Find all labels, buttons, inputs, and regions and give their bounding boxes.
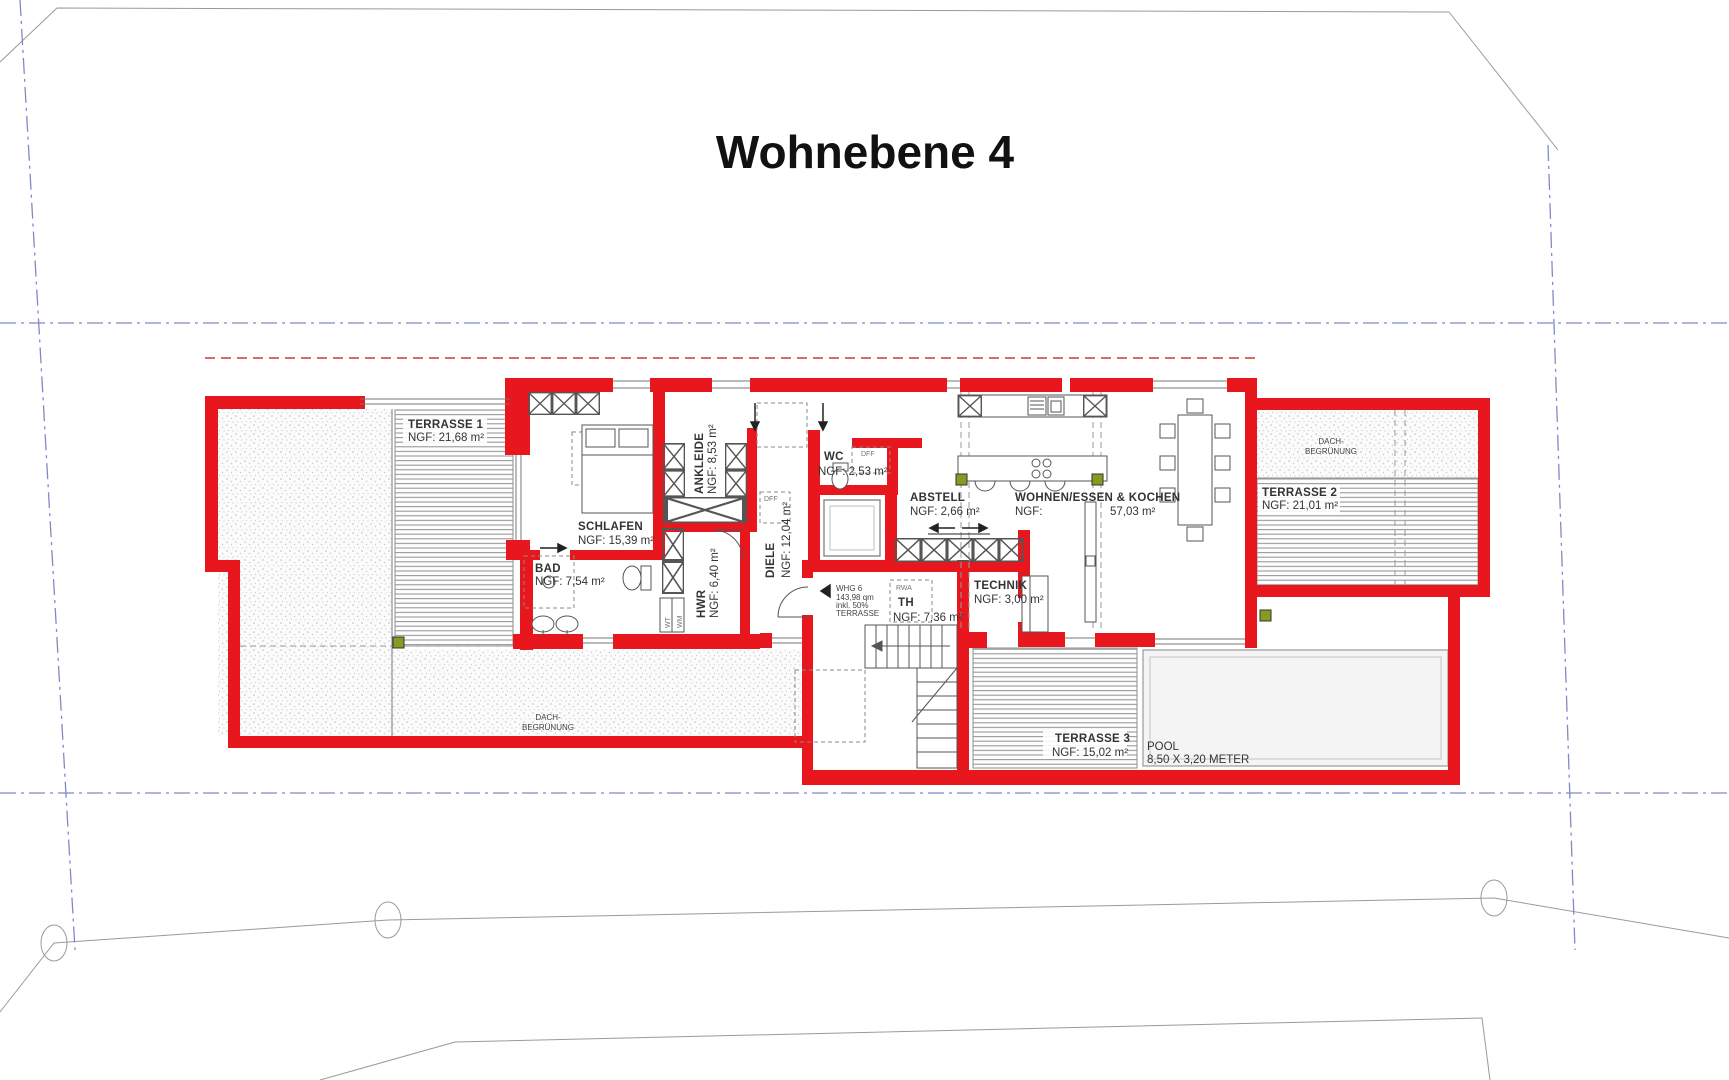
room-label-diele: DIELE xyxy=(765,543,777,578)
sink xyxy=(532,616,554,632)
bed xyxy=(582,425,653,513)
skylight-dashed-box xyxy=(757,403,807,447)
bar-stool xyxy=(1010,481,1030,491)
room-area-schlafen: NGF: 15,39 m² xyxy=(578,535,654,547)
room-label-schlafen: SCHLAFEN xyxy=(578,521,643,533)
room-area-terrasse3: NGF: 15,02 m² xyxy=(1052,747,1128,759)
room-area-ankleide: NGF: 8,53 m² xyxy=(707,424,719,494)
room-area-bad: NGF: 7,54 m² xyxy=(535,576,605,588)
dach-line1: DACH- xyxy=(1318,437,1344,446)
whg-annotation: WHG 6 143,98 qm inkl. 50% TERRASSE xyxy=(836,584,879,618)
dff-label: DFF xyxy=(764,496,778,503)
room-label-terrasse2: TERRASSE 2 xyxy=(1262,487,1337,499)
room-label-bad: BAD xyxy=(535,563,561,575)
room-area-abstell: NGF: 2,66 m² xyxy=(910,506,980,518)
sink xyxy=(556,616,578,632)
dach-line2: BEGRÜNUNG xyxy=(1305,447,1357,456)
bar-stool xyxy=(975,481,995,491)
dach-line1: DACH- xyxy=(535,713,561,722)
floor-plan-canvas: Wohnebene 4 TERRASSE 1 NGF: 21,68 m² SCH… xyxy=(0,0,1729,1080)
pool xyxy=(1143,650,1448,766)
wm-label: WM xyxy=(677,615,684,628)
room-area-technik: NGF: 3,00 m² xyxy=(974,594,1044,606)
stair-direction-arrow xyxy=(872,641,882,651)
elevator-car xyxy=(824,500,880,556)
wt-label: WT xyxy=(665,616,672,628)
room-area-hwr: NGF: 6,40 m² xyxy=(709,548,721,618)
room-label-technik: TECHNIK xyxy=(974,580,1028,592)
room-label-pool: POOL xyxy=(1147,741,1180,753)
toilet xyxy=(623,566,651,590)
room-area-terrasse2: NGF: 21,01 m² xyxy=(1262,500,1338,512)
kitchen xyxy=(958,395,1107,491)
room-label-terrasse1: TERRASSE 1 xyxy=(408,419,484,431)
room-area-terrasse1: NGF: 21,68 m² xyxy=(408,432,484,444)
staircase xyxy=(865,625,957,768)
bar-stool xyxy=(1045,481,1065,491)
room-area-th: NGF: 7,36 m² xyxy=(893,612,963,624)
room-label-ankleide: ANKLEIDE xyxy=(694,433,706,494)
door-arc xyxy=(778,587,808,617)
dach-line2: BEGRÜNUNG xyxy=(522,723,574,732)
room-area-label-wohnen: NGF: xyxy=(1015,506,1042,518)
room-label-hwr: HWR xyxy=(696,589,708,618)
whg-line4: TERRASSE xyxy=(836,609,879,618)
room-area-wc: NGF: 2,53 m² xyxy=(818,466,888,478)
terrasse-1-deck xyxy=(395,410,513,646)
room-area-value-wohnen: 57,03 m² xyxy=(1110,506,1156,518)
entrance-marker-triangle xyxy=(821,585,830,597)
room-label-th: TH xyxy=(898,597,914,609)
room-label-wc: WC xyxy=(824,451,844,463)
whg-line1: WHG 6 xyxy=(836,584,863,593)
room-label-abstell: ABSTELL xyxy=(910,492,965,504)
page-title: Wohnebene 4 xyxy=(716,126,1015,178)
rwa-label: RWA xyxy=(896,585,912,592)
room-label-terrasse3: TERRASSE 3 xyxy=(1055,733,1130,745)
pool-dimensions: 8,50 X 3,20 METER xyxy=(1147,754,1249,766)
tv-lowboard xyxy=(1085,502,1096,622)
dining-set xyxy=(1160,399,1230,541)
room-area-diele: NGF: 12,04 m² xyxy=(781,502,793,578)
room-label-wohnen: WOHNEN/ESSEN & KOCHEN xyxy=(1015,492,1180,504)
dff-label: DFF xyxy=(861,451,875,458)
kitchen-island xyxy=(958,456,1107,481)
